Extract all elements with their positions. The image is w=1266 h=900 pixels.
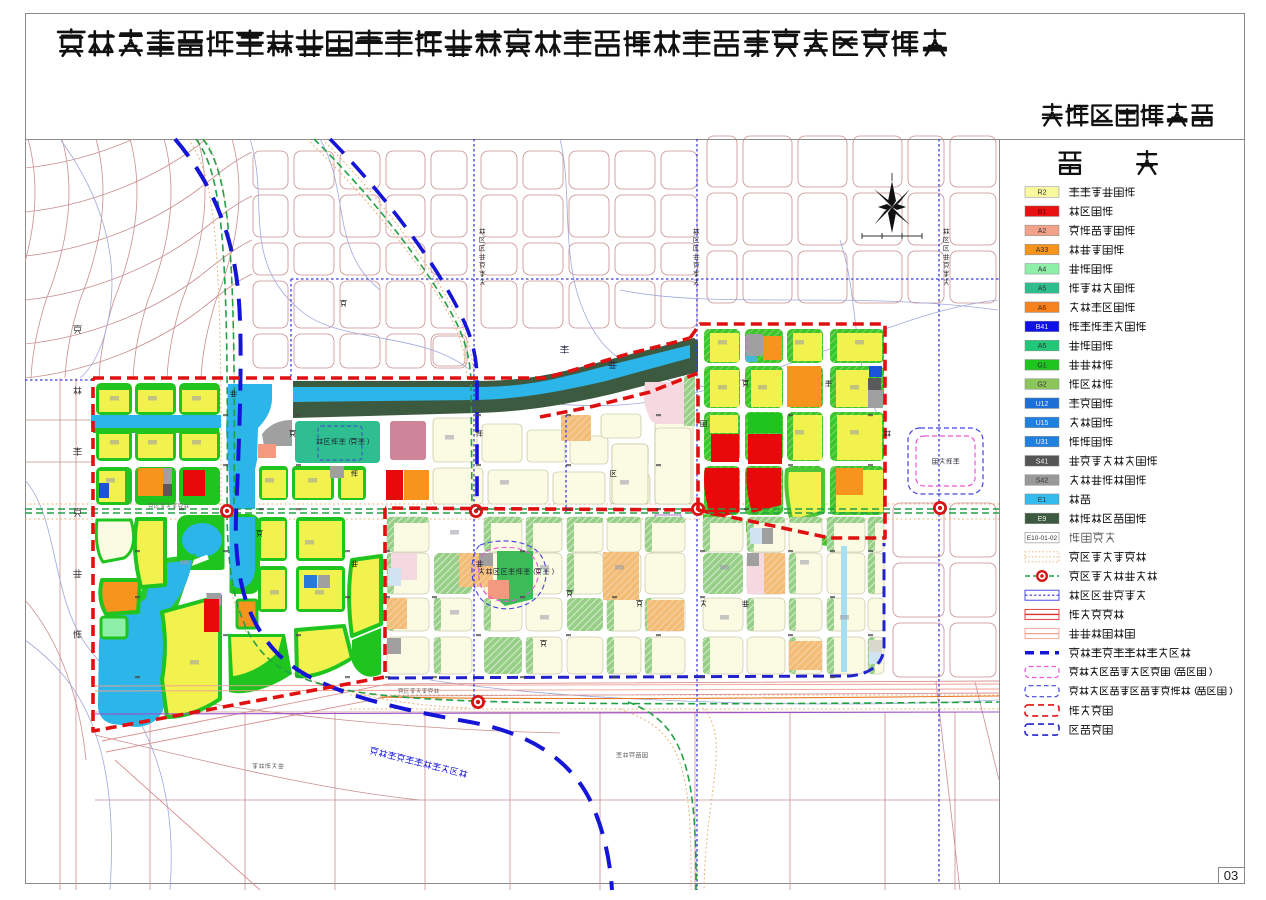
svg-text:A33: A33 — [1036, 247, 1049, 254]
svg-text:E1: E1 — [1038, 497, 1047, 504]
svg-text:A5: A5 — [1038, 343, 1047, 350]
svg-text:E10-01-02: E10-01-02 — [1027, 535, 1058, 542]
svg-text:U31: U31 — [1036, 439, 1049, 446]
svg-text:S41: S41 — [1036, 458, 1049, 465]
svg-text:U15: U15 — [1036, 420, 1049, 427]
svg-text:B41: B41 — [1036, 324, 1049, 331]
svg-text:G1: G1 — [1037, 362, 1046, 369]
svg-text:E9: E9 — [1038, 516, 1047, 523]
svg-text:U12: U12 — [1036, 401, 1049, 408]
svg-text:A5: A5 — [1038, 286, 1047, 293]
svg-text:R2: R2 — [1038, 190, 1047, 197]
svg-text:03: 03 — [1224, 868, 1238, 883]
svg-text:A2: A2 — [1038, 228, 1047, 235]
svg-text:A6: A6 — [1038, 305, 1047, 312]
svg-text:S42: S42 — [1036, 478, 1049, 485]
svg-text:G2: G2 — [1037, 382, 1046, 389]
svg-text:B1: B1 — [1038, 209, 1047, 216]
svg-text:A4: A4 — [1038, 266, 1047, 273]
